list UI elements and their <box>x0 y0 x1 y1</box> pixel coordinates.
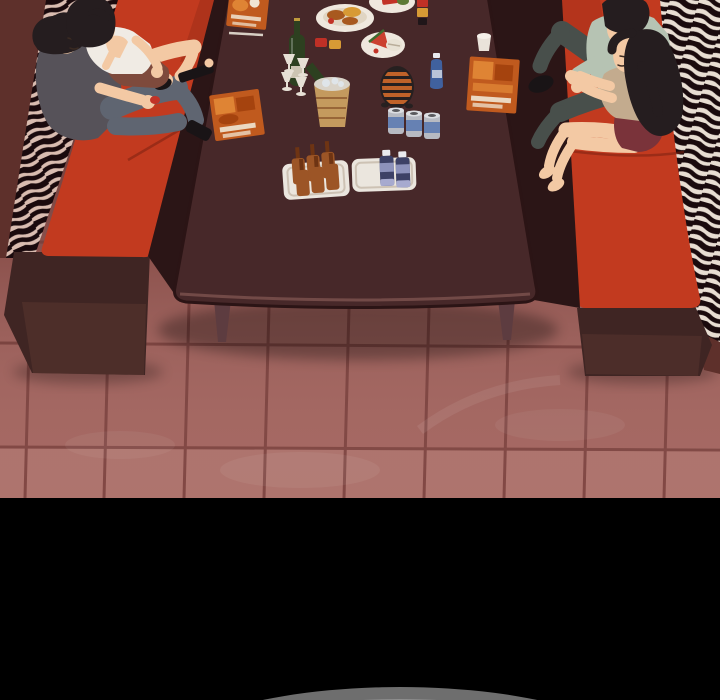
menu-card-right <box>466 56 520 113</box>
right-bench-base-front <box>582 334 702 376</box>
side-dish-yellow <box>329 40 341 49</box>
white-cup <box>477 33 491 51</box>
panel-artwork <box>0 0 720 700</box>
left-bench-base-front <box>22 302 146 375</box>
right-man-hair <box>602 0 649 33</box>
menu-card-top <box>226 0 270 30</box>
plate-fried-chicken <box>316 4 374 32</box>
left-woman-hair <box>66 0 115 47</box>
panel-gutter <box>0 498 720 700</box>
red-item-in-hand <box>150 96 160 104</box>
sauce-boxes-stack <box>417 0 428 25</box>
comic-panel <box>0 0 720 700</box>
side-dish-red <box>315 38 327 47</box>
menu-card-left <box>209 89 265 142</box>
left-man-other-leg <box>116 122 178 127</box>
